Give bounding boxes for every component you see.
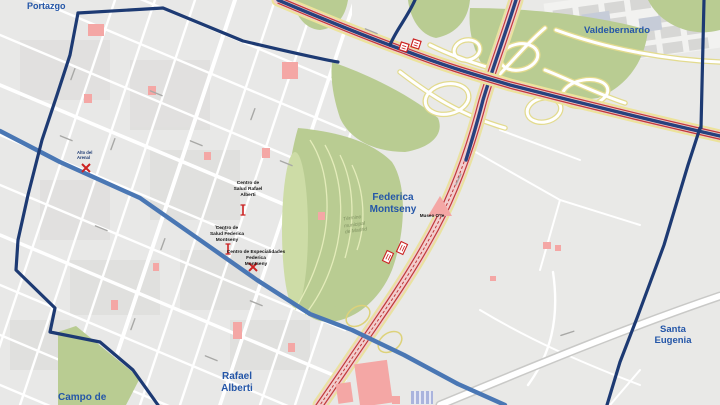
map-canvas[interactable]: Portazgo Valdebernardo Federica Montseny… xyxy=(0,0,720,405)
exit-sign-marker-1 xyxy=(399,42,409,52)
map-graphics xyxy=(0,0,720,405)
park-light-area xyxy=(282,152,308,308)
striped-building xyxy=(411,391,433,404)
exit-sign-marker-2 xyxy=(411,39,421,49)
